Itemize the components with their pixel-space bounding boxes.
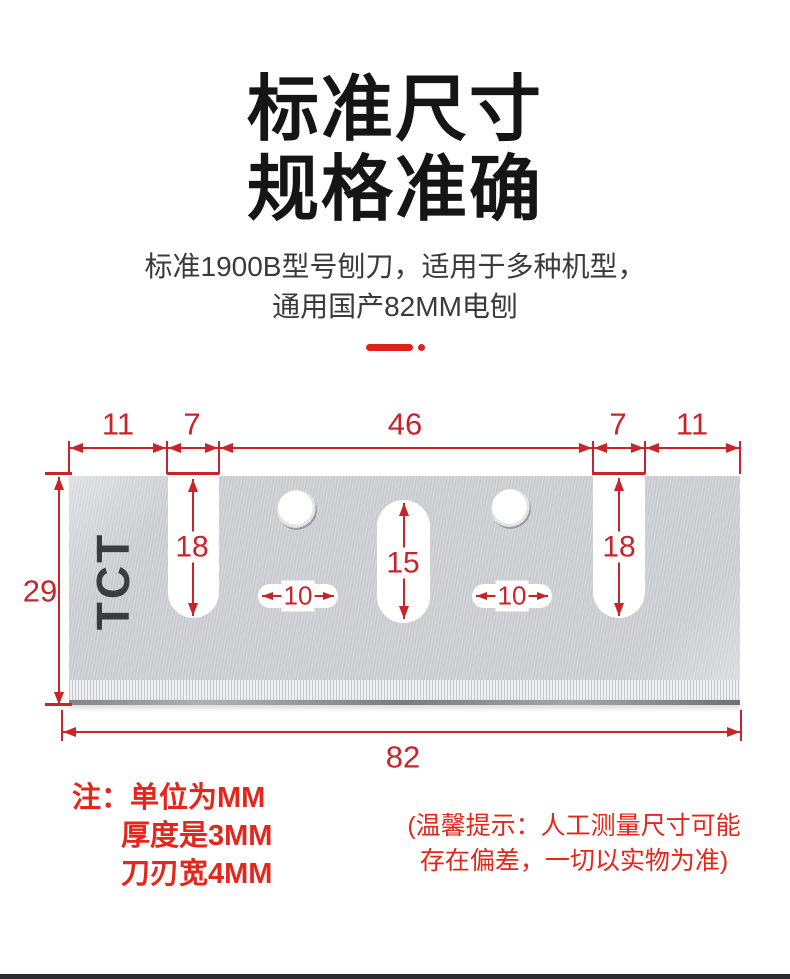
arrow-icon <box>537 592 548 600</box>
red-divider-bar <box>366 344 413 351</box>
note-disclaimer: (温馨提示：人工测量尺寸可能 存在偏差，一切以实物为准) <box>398 809 750 879</box>
note-disclaimer-line2: 存在偏差，一切以实物为准) <box>398 844 750 879</box>
dim-label-top-11-right: 11 <box>676 409 708 440</box>
notch-left-cap-line <box>167 472 219 475</box>
blade-brand-text: TCT <box>86 532 140 630</box>
arrow-icon <box>614 478 624 491</box>
product-spec-page: 标准尺寸 规格准确 标准1900B型号刨刀，适用于多种机型， 通用国产82MM电… <box>0 0 790 979</box>
dim-label-top-46: 46 <box>388 409 422 440</box>
screw-hole-right <box>491 489 531 529</box>
arrow-icon <box>63 727 76 737</box>
arrow-icon <box>646 443 659 453</box>
note-units: 注：单位为MM <box>72 783 265 813</box>
screw-hole-left <box>277 490 317 530</box>
dim-label-29: 29 <box>23 576 57 607</box>
arrow-icon <box>205 443 218 453</box>
top-tick-6 <box>739 441 741 474</box>
note-thickness: 厚度是3MM <box>121 821 272 851</box>
page-title-line2: 规格准确 <box>0 150 790 230</box>
dim-label-top-11-left: 11 <box>102 409 134 440</box>
arrow-icon <box>220 443 233 453</box>
subtitle-line1: 标准1900B型号刨刀，适用于多种机型， <box>0 250 790 284</box>
dim-label-82: 82 <box>386 742 420 773</box>
dim-label-10-left: 10 <box>282 581 315 612</box>
arrow-icon <box>579 443 592 453</box>
red-divider-dot <box>418 344 425 351</box>
dim-label-18-left: 18 <box>173 532 210 563</box>
dim-label-15: 15 <box>384 548 421 579</box>
blade-cutting-edge <box>69 700 740 705</box>
dim-label-10-right: 10 <box>496 581 529 612</box>
arrow-icon <box>54 477 64 490</box>
dim-82-right-ext <box>740 710 742 741</box>
page-title-line1: 标准尺寸 <box>0 70 790 150</box>
arrow-icon <box>399 606 409 619</box>
arrow-icon <box>262 592 273 600</box>
dim-29-top-cap <box>45 472 72 475</box>
subtitle-line2: 通用国产82MM电刨 <box>0 290 790 324</box>
arrow-icon <box>70 443 83 453</box>
arrow-icon <box>726 443 739 453</box>
blade-bevel-edge <box>69 680 740 700</box>
dim-label-18-right: 18 <box>600 532 637 563</box>
arrow-icon <box>54 692 64 705</box>
arrow-icon <box>476 592 487 600</box>
arrow-icon <box>323 592 334 600</box>
notch-right-cap-line <box>592 472 645 475</box>
note-disclaimer-line1: (温馨提示：人工测量尺寸可能 <box>398 809 750 844</box>
dim-line-82 <box>62 731 741 733</box>
dim-label-top-7-right: 7 <box>609 409 626 440</box>
arrow-icon <box>399 503 409 516</box>
arrow-icon <box>727 727 740 737</box>
arrow-icon <box>168 443 181 453</box>
arrow-icon <box>594 443 607 453</box>
arrow-icon <box>631 443 644 453</box>
bottom-dark-bar <box>0 974 790 979</box>
dim-label-top-7-left: 7 <box>183 409 200 440</box>
arrow-icon <box>188 603 198 616</box>
arrow-icon <box>614 603 624 616</box>
dim-line-29 <box>58 477 60 705</box>
arrow-icon <box>153 443 166 453</box>
arrow-icon <box>188 479 198 492</box>
note-edge-width: 刀刃宽4MM <box>121 859 272 889</box>
